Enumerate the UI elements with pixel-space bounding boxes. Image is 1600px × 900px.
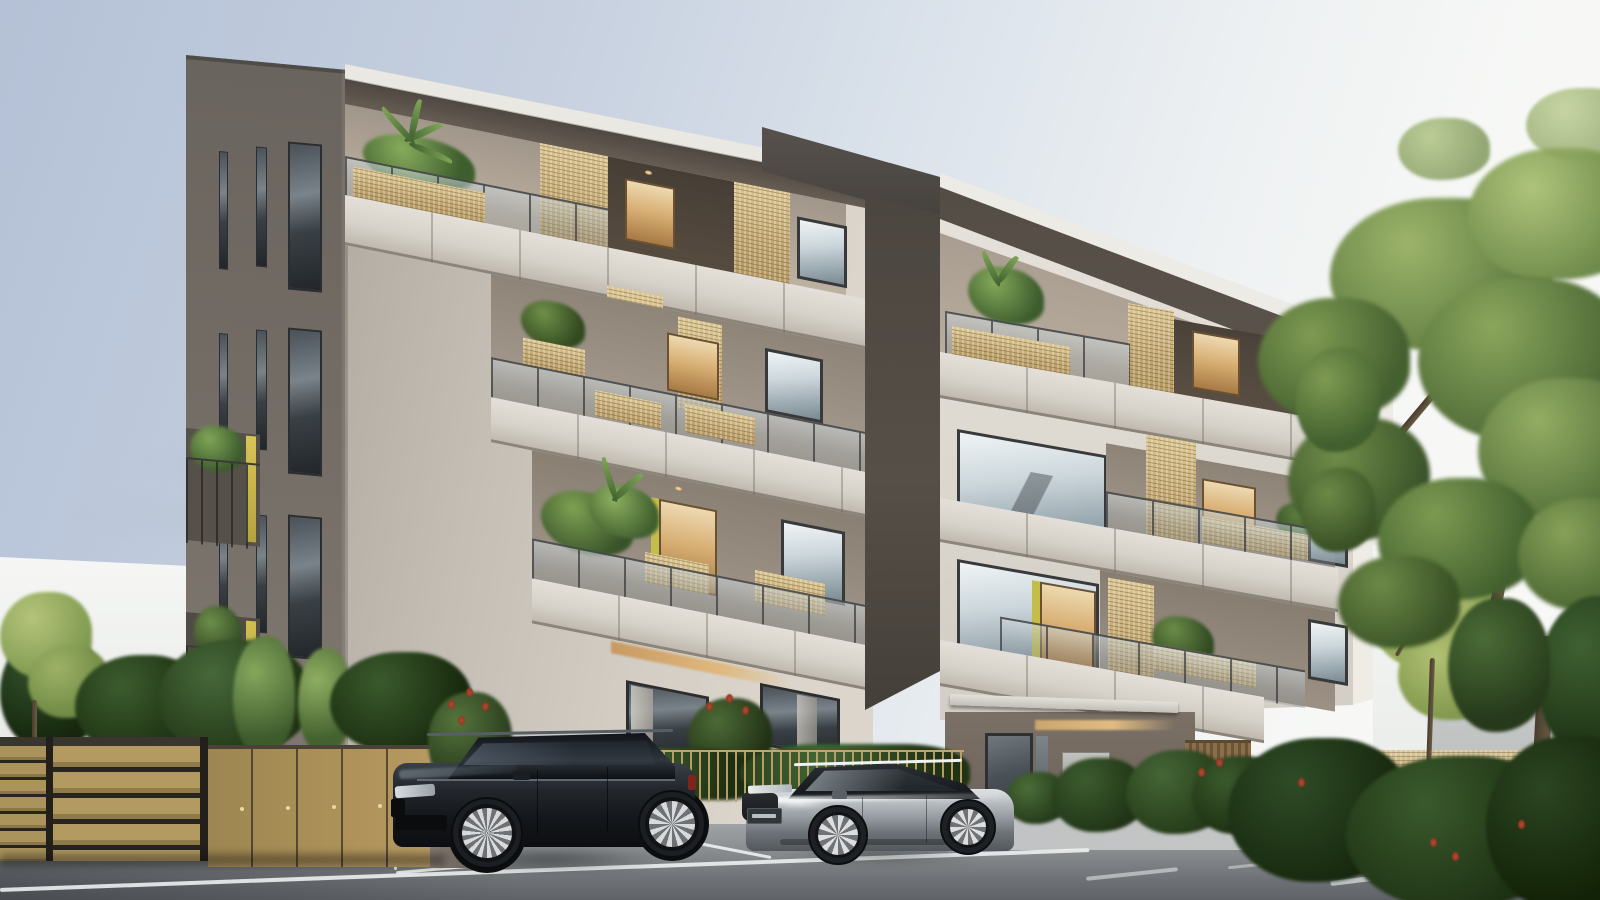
sedan-mirror: [832, 791, 847, 799]
window: [797, 216, 847, 288]
suv-front-wheel: [451, 797, 523, 869]
suv-door-seam: [607, 767, 608, 831]
west-window: [288, 141, 322, 292]
suv-vehicle: [385, 715, 715, 880]
tree-canopy: [1338, 556, 1460, 648]
red-flower: [1216, 758, 1223, 767]
door-handle: [240, 807, 244, 811]
door-handle: [332, 805, 336, 809]
gate-top-rail: [0, 737, 208, 746]
gate-post: [200, 737, 208, 861]
garden-slim-tree: [233, 636, 295, 756]
dark-stair-core-connector: [865, 195, 942, 710]
sedan-vehicle: [740, 755, 1020, 870]
gate-slats-main: [53, 746, 200, 861]
suv-door-seam: [537, 770, 538, 834]
west-window: [288, 327, 322, 476]
wheel-spokes: [818, 815, 858, 855]
gate-post: [46, 737, 53, 861]
red-flower: [706, 702, 713, 711]
slit-window: [256, 146, 267, 267]
lit-window: [667, 332, 719, 400]
gold-mesh-screen: [1128, 303, 1174, 393]
gold-gate: [0, 737, 208, 861]
red-flower: [448, 700, 455, 709]
suv-mirror: [513, 771, 530, 780]
suv-bumper-intake: [395, 815, 447, 830]
red-flower: [1298, 778, 1305, 787]
red-flower: [1198, 768, 1205, 777]
balcony-railing: [186, 457, 260, 550]
sedan-rear-wheel: [940, 799, 996, 855]
slit-window: [219, 151, 228, 270]
sedan-headlight: [748, 784, 792, 794]
red-flower: [1518, 820, 1525, 829]
wheel-spokes: [462, 808, 512, 858]
sedan-license-plate: [747, 808, 782, 824]
red-flower: [482, 702, 489, 711]
lit-window: [1192, 330, 1240, 396]
sedan-front-wheel: [808, 805, 868, 865]
door-handle: [378, 804, 382, 808]
red-flower: [466, 688, 473, 697]
lit-window: [625, 178, 675, 250]
tree-leaves-over-facade: [1296, 348, 1380, 452]
red-flower: [1430, 838, 1437, 847]
gold-mesh-screen: [734, 182, 790, 284]
window: [765, 348, 823, 424]
suv-beltline-trim: [417, 779, 675, 781]
entrance-warm-ceiling: [1035, 720, 1175, 730]
suv-window-reflection: [455, 741, 655, 765]
corner-window: [1308, 619, 1348, 686]
sedan-door-seam: [926, 795, 927, 843]
red-flower: [1452, 852, 1459, 861]
gate-slats-small: [0, 746, 46, 861]
suv-rear-wheel: [638, 790, 706, 858]
architectural-render-scene: [0, 0, 1600, 900]
door-handle: [286, 806, 290, 810]
west-window: [288, 514, 322, 660]
right-tall-shrub: [1448, 598, 1550, 732]
tree-canopy-sparse: [1398, 118, 1490, 180]
suv-taillight: [688, 775, 696, 790]
slit-window: [256, 329, 267, 450]
wheel-spokes: [649, 801, 695, 847]
wheel-spokes: [950, 809, 986, 845]
plate-characters: [752, 814, 776, 818]
gate-ground-shadow: [0, 854, 445, 866]
red-flower: [726, 694, 733, 703]
tree-leaves-over-facade: [1302, 468, 1376, 552]
red-flower: [742, 706, 749, 715]
